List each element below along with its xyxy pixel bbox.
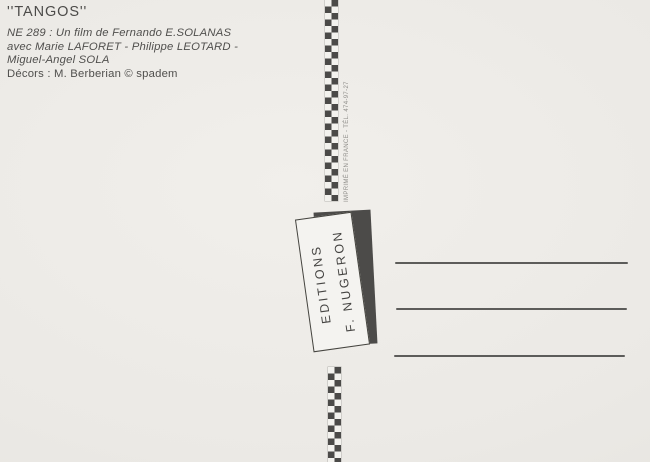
address-line — [394, 355, 625, 357]
printed-credits-block: ''TANGOS'' NE 289 : Un film de Fernando … — [7, 4, 337, 82]
film-title: ''TANGOS'' — [7, 4, 337, 20]
registration-strip-bottom — [328, 367, 341, 462]
address-line — [396, 308, 627, 310]
printer-imprint-text: IMPRIMÉ EN FRANCE - TÉL. 474-97-27 — [344, 81, 350, 202]
publisher-stamp: EDITIONS F. NUGERON — [293, 205, 388, 363]
stamp-text: EDITIONS F. NUGERON — [303, 228, 362, 336]
registration-strip-top — [325, 0, 338, 201]
address-line — [395, 262, 628, 264]
postcard-back: ''TANGOS'' NE 289 : Un film de Fernando … — [0, 0, 650, 462]
credit-line-3: Miguel-Angel SOLA — [7, 54, 337, 68]
credit-line-2: avec Marie LAFORET - Philippe LEOTARD - — [7, 41, 337, 55]
credit-line-1: NE 289 : Un film de Fernando E.SOLANAS — [7, 27, 337, 41]
decor-credit-line: Décors : M. Berberian © spadem — [7, 68, 337, 82]
